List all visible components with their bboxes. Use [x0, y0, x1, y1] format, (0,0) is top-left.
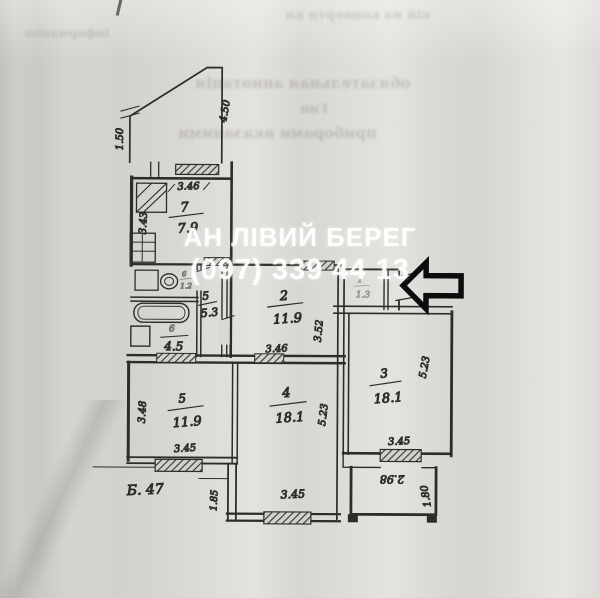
dim-room5-left: 3.48 — [137, 401, 149, 424]
watermark-agency-name: АН ЛІВИЙ БЕРЕГ — [0, 222, 600, 253]
watermark-phone: (097) 339 44 13 — [0, 254, 600, 287]
cross-wall — [128, 353, 345, 363]
dim-room5-bottom: 3.45 — [174, 443, 197, 455]
room-hall-area: 11.9 — [273, 311, 303, 328]
window-symbol — [264, 512, 311, 524]
room-kitchen-number: 7 — [180, 200, 190, 216]
bathtub-icon — [134, 303, 189, 322]
washbasin-icon — [131, 326, 150, 346]
dim-room4-right: 5.23 — [317, 403, 331, 426]
room-closet-area: 1.3 — [356, 290, 371, 300]
balcony-bottom: 2.98 1.80 — [343, 453, 437, 522]
window-symbol — [380, 449, 421, 461]
window-symbol — [176, 164, 219, 174]
room-5-area: 11.9 — [172, 414, 202, 431]
room-3-number: 3 — [380, 366, 389, 381]
floor-plan-drawing: 1.50 4.50 — [0, 0, 600, 598]
room-hall-number: 2 — [278, 289, 288, 305]
door-symbol — [151, 162, 159, 176]
window-symbol — [155, 459, 202, 471]
room-bathroom-number: 6 — [169, 324, 175, 334]
dim-hall-right: 3.52 — [313, 319, 326, 342]
dim-balcony2-right: 1.80 — [419, 484, 434, 508]
scanned-floor-plan-photo: вій на конверти ви обязательная аннотаці… — [0, 0, 600, 598]
dim-room3-right: 5.23 — [418, 355, 433, 379]
room-corridor-area: 5.3 — [200, 305, 219, 320]
room-4-number: 4 — [281, 386, 291, 402]
dim-room3-bottom: 3.45 — [388, 436, 411, 448]
dim-kitchen-top: 3.46 — [177, 181, 200, 193]
room-4-area: 18.1 — [275, 410, 305, 427]
dim-balcony2-top: 2.98 — [380, 472, 406, 485]
dim-room4-bottom: 3.45 — [280, 487, 305, 501]
dim-balcony-left: 1.50 — [115, 127, 126, 150]
room-bathroom-area: 4.5 — [163, 339, 183, 353]
door-symbol — [157, 353, 196, 362]
pen-mark — [117, 1, 120, 14]
plan-note: Б. 47 — [125, 481, 164, 499]
room-5-number: 5 — [178, 391, 187, 406]
room-corridor-number: 5 — [202, 289, 210, 303]
dim-balcony-right: 4.50 — [218, 99, 233, 124]
room-3: 3 18.1 5.23 3.45 — [343, 311, 452, 462]
stove-icon — [136, 183, 166, 212]
door-symbol — [255, 354, 284, 363]
dim-room4-left: 1.85 — [208, 490, 220, 512]
balcony-top: 1.50 4.50 — [115, 67, 234, 177]
room-3-area: 18.1 — [373, 390, 403, 407]
room-4: 4 18.1 5.23 3.45 1.85 — [199, 362, 341, 524]
